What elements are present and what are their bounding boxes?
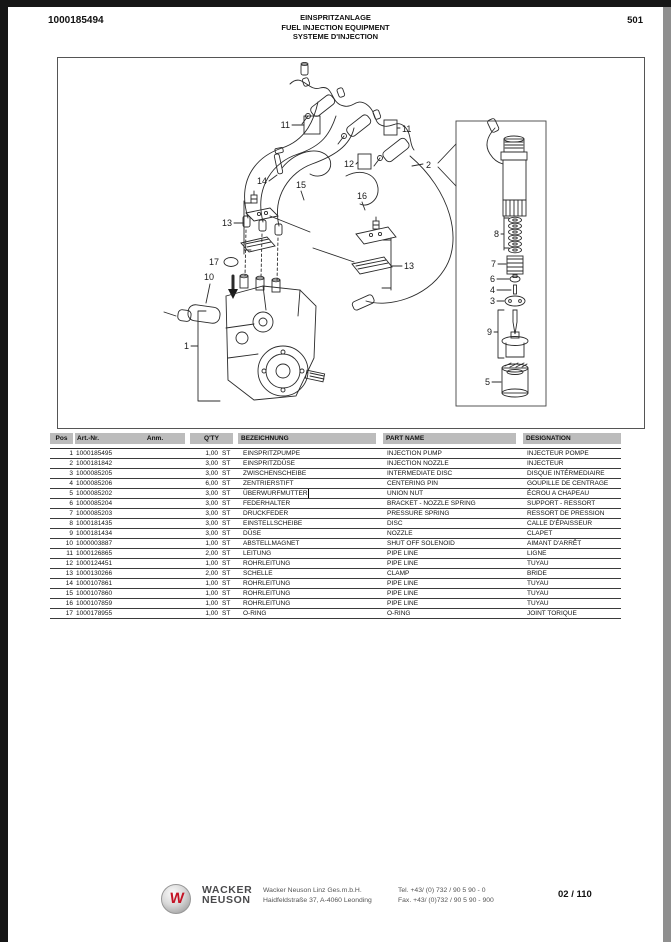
cell-art-nr: 1000126865	[76, 549, 128, 558]
cell-pos: 4	[50, 479, 73, 488]
cell-unit: ST	[218, 569, 240, 578]
cell-designation: JOINT TORIQUE	[524, 609, 621, 618]
cell-art-nr: 1000003887	[76, 539, 128, 548]
callout-3: 3	[490, 296, 495, 306]
viewer-right-gutter	[663, 0, 671, 942]
table-row: 4 1000085206 6,00 ST ZENTRIERSTIFT CENTE…	[50, 479, 621, 489]
cell-anm	[128, 509, 183, 518]
cell-bezeichnung: FEDERHALTER	[240, 499, 384, 508]
table-body: 1 1000185495 1,00 ST EINSPRITZPUMPE INJE…	[50, 448, 621, 619]
cell-bezeichnung: LEITUNG	[240, 549, 384, 558]
cell-anm	[128, 559, 183, 568]
cell-unit: ST	[218, 469, 240, 478]
callout-13-left: 13	[222, 218, 232, 228]
cell-anm	[128, 539, 183, 548]
cell-pos: 15	[50, 589, 73, 598]
cell-qty: 3,00	[183, 529, 218, 538]
cell-qty: 3,00	[183, 499, 218, 508]
callout-12: 12	[344, 159, 354, 169]
cell-designation: CALLE D'ÉPAISSEUR	[524, 519, 621, 528]
cell-art-nr: 1000085204	[76, 499, 128, 508]
cell-designation: GOUPILLE DE CENTRAGE	[524, 479, 621, 488]
brand-wordmark: WACKER NEUSON	[202, 885, 252, 905]
cell-unit: ST	[218, 559, 240, 568]
callout-6: 6	[490, 274, 495, 284]
cell-art-nr: 1000181434	[76, 529, 128, 538]
callout-16: 16	[357, 191, 367, 201]
cell-designation: TUYAU	[524, 559, 621, 568]
cell-art-nr: 1000085202	[76, 489, 128, 498]
cell-bezeichnung: EINSPRITZPUMPE	[240, 449, 384, 458]
table-row: 3 1000085205 3,00 ST ZWISCHENSCHEIBE INT…	[50, 469, 621, 479]
cell-pos: 11	[50, 549, 73, 558]
cell-part-name: PRESSURE SPRING	[384, 509, 524, 518]
cell-part-name: PIPE LINE	[384, 549, 524, 558]
table-header-row: Pos Art.-Nr. Anm. Q'TY BEZEICHNUNG PART …	[50, 433, 621, 444]
table-row: 2 1000181842 3,00 ST EINSPRITZDÜSE INJEC…	[50, 459, 621, 469]
cell-designation: CLAPET	[524, 529, 621, 538]
cell-art-nr: 1000178955	[76, 609, 128, 618]
cell-part-name: O-RING	[384, 609, 524, 618]
cell-pos: 5	[50, 489, 73, 498]
cell-qty: 3,00	[183, 489, 218, 498]
callout-11-left: 11	[281, 120, 290, 130]
wacker-neuson-logo: W	[161, 884, 191, 914]
cell-pos: 17	[50, 609, 73, 618]
cell-pos: 2	[50, 459, 73, 468]
cell-unit: ST	[218, 589, 240, 598]
cell-pos: 6	[50, 499, 73, 508]
cell-anm	[128, 459, 183, 468]
cell-designation: AIMANT D'ARRÊT	[524, 539, 621, 548]
parts-diagram: 11 11 12 2 14 15 16 13 13 17 10 1 8 7 6 …	[57, 57, 645, 429]
cell-bezeichnung: EINSPRITZDÜSE	[240, 459, 384, 468]
cell-anm	[128, 499, 183, 508]
table-row: 13 1000130266 2,00 ST SCHELLE CLAMP BRID…	[50, 569, 621, 579]
cell-unit: ST	[218, 599, 240, 608]
cell-part-name: PIPE LINE	[384, 559, 524, 568]
cell-art-nr: 1000130266	[76, 569, 128, 578]
fax-line: Fax. +43/ (0)732 / 90 5 90 - 900	[398, 896, 494, 906]
callout-15: 15	[296, 180, 306, 190]
cell-designation: ÉCROU A CHAPEAU	[524, 489, 621, 498]
logo-w-letter: W	[161, 890, 193, 907]
cell-anm	[128, 519, 183, 528]
table-row: 8 1000181435 3,00 ST EINSTELLSCHEIBE DIS…	[50, 519, 621, 529]
cell-anm	[128, 469, 183, 478]
cell-part-name: INJECTION NOZZLE	[384, 459, 524, 468]
company-name: Wacker Neuson Linz Ges.m.b.H.	[263, 886, 372, 896]
cell-art-nr: 1000107859	[76, 599, 128, 608]
cell-qty: 3,00	[183, 459, 218, 468]
cell-unit: ST	[218, 609, 240, 618]
callout-7: 7	[491, 259, 496, 269]
cell-art-nr: 1000107860	[76, 589, 128, 598]
parts-diagram-drawing: 11 11 12 2 14 15 16 13 13 17 10 1 8 7 6 …	[58, 58, 644, 428]
cell-part-name: BRACKET - NOZZLE SPRING	[384, 499, 524, 508]
cell-bezeichnung: ÜBERWURFMUTTER	[240, 489, 384, 498]
cell-part-name: NOZZLE	[384, 529, 524, 538]
callout-14: 14	[257, 176, 267, 186]
cell-part-name: PIPE LINE	[384, 599, 524, 608]
phone-line: Tel. +43/ (0) 732 / 90 5 90 - 0	[398, 886, 494, 896]
column-header-artnr: Art.-Nr.	[77, 433, 99, 444]
cell-anm	[128, 599, 183, 608]
title-french: SYSTEME D'INJECTION	[0, 32, 671, 42]
cell-unit: ST	[218, 549, 240, 558]
cell-anm	[128, 609, 183, 618]
table-row: 12 1000124451 1,00 ST ROHRLEITUNG PIPE L…	[50, 559, 621, 569]
cell-anm	[128, 479, 183, 488]
callout-2: 2	[426, 160, 431, 170]
cell-art-nr: 1000124451	[76, 559, 128, 568]
column-header-qty: Q'TY	[190, 433, 233, 444]
cell-bezeichnung: ROHRLEITUNG	[240, 579, 384, 588]
cell-qty: 1,00	[183, 559, 218, 568]
cell-part-name: INJECTION PUMP	[384, 449, 524, 458]
column-header-partname: PART NAME	[383, 433, 516, 444]
cell-art-nr: 1000181435	[76, 519, 128, 528]
title-english: FUEL INJECTION EQUIPMENT	[0, 23, 671, 33]
cell-art-nr: 1000085203	[76, 509, 128, 518]
table-row: 15 1000107860 1,00 ST ROHRLEITUNG PIPE L…	[50, 589, 621, 599]
text-cursor	[308, 489, 310, 498]
column-header-bezeichnung: BEZEICHNUNG	[238, 433, 376, 444]
sheet-indicator: 02 / 110	[558, 889, 592, 900]
column-header-artnr-anm: Art.-Nr. Anm.	[75, 433, 185, 444]
cell-bezeichnung: O-RING	[240, 609, 384, 618]
cell-unit: ST	[218, 579, 240, 588]
cell-qty: 1,00	[183, 579, 218, 588]
cell-unit: ST	[218, 489, 240, 498]
cell-unit: ST	[218, 449, 240, 458]
cell-qty: 3,00	[183, 509, 218, 518]
cell-designation: RESSORT DE PRESSION	[524, 509, 621, 518]
callout-5: 5	[485, 377, 490, 387]
cell-anm	[128, 549, 183, 558]
cell-anm	[128, 489, 183, 498]
cell-pos: 14	[50, 579, 73, 588]
page-number: 501	[627, 15, 643, 26]
cell-unit: ST	[218, 509, 240, 518]
table-row: 1 1000185495 1,00 ST EINSPRITZPUMPE INJE…	[50, 449, 621, 459]
column-header-designation: DESIGNATION	[523, 433, 621, 444]
cell-part-name: SHUT OFF SOLENOID	[384, 539, 524, 548]
brand-line-2: NEUSON	[202, 895, 252, 905]
cell-designation: BRIDE	[524, 569, 621, 578]
cell-qty: 1,00	[183, 449, 218, 458]
cell-anm	[128, 529, 183, 538]
cell-bezeichnung: DÜSE	[240, 529, 384, 538]
callout-17: 17	[209, 257, 219, 267]
cell-designation: TUYAU	[524, 579, 621, 588]
cell-qty: 2,00	[183, 549, 218, 558]
column-header-anm: Anm.	[130, 433, 180, 444]
cell-bezeichnung: ROHRLEITUNG	[240, 599, 384, 608]
cell-anm	[128, 579, 183, 588]
callout-4: 4	[490, 285, 495, 295]
cell-art-nr: 1000085205	[76, 469, 128, 478]
cell-qty: 3,00	[183, 519, 218, 528]
cell-designation: DISQUE INTÉRMEDIAIRE	[524, 469, 621, 478]
viewer-top-edge	[0, 0, 671, 7]
callout-8: 8	[494, 229, 499, 239]
cell-unit: ST	[218, 499, 240, 508]
cell-bezeichnung: ZENTRIERSTIFT	[240, 479, 384, 488]
cell-designation: SUPPORT - RESSORT	[524, 499, 621, 508]
cell-designation: TUYAU	[524, 599, 621, 608]
company-street: Haidfeldstraße 37, A-4060 Leonding	[263, 896, 372, 906]
table-row: 11 1000126865 2,00 ST LEITUNG PIPE LINE …	[50, 549, 621, 559]
callout-1: 1	[184, 341, 189, 351]
table-row: 9 1000181434 3,00 ST DÜSE NOZZLE CLAPET	[50, 529, 621, 539]
cell-pos: 7	[50, 509, 73, 518]
page-title: EINSPRITZANLAGE FUEL INJECTION EQUIPMENT…	[0, 13, 671, 42]
cell-qty: 2,00	[183, 569, 218, 578]
cell-qty: 6,00	[183, 479, 218, 488]
cell-designation: TUYAU	[524, 589, 621, 598]
cell-part-name: UNION NUT	[384, 489, 524, 498]
cell-qty: 1,00	[183, 599, 218, 608]
cell-unit: ST	[218, 539, 240, 548]
viewer-left-edge	[0, 0, 8, 942]
cell-bezeichnung: EINSTELLSCHEIBE	[240, 519, 384, 528]
table-row: 7 1000085203 3,00 ST DRUCKFEDER PRESSURE…	[50, 509, 621, 519]
cell-pos: 8	[50, 519, 73, 528]
cell-unit: ST	[218, 479, 240, 488]
cell-bezeichnung: ZWISCHENSCHEIBE	[240, 469, 384, 478]
cell-art-nr: 1000085206	[76, 479, 128, 488]
cell-part-name: CENTERING PIN	[384, 479, 524, 488]
cell-bezeichnung: ROHRLEITUNG	[240, 559, 384, 568]
callout-9: 9	[487, 327, 492, 337]
cell-unit: ST	[218, 529, 240, 538]
table-row: 14 1000107861 1,00 ST ROHRLEITUNG PIPE L…	[50, 579, 621, 589]
cell-part-name: INTERMEDIATE DISC	[384, 469, 524, 478]
cell-qty: 3,00	[183, 469, 218, 478]
cell-bezeichnung: ROHRLEITUNG	[240, 589, 384, 598]
cell-unit: ST	[218, 459, 240, 468]
callout-10: 10	[204, 272, 214, 282]
cell-designation: INJECTEUR	[524, 459, 621, 468]
cell-qty: 1,00	[183, 589, 218, 598]
cell-pos: 12	[50, 559, 73, 568]
cell-designation: INJECTEUR POMPE	[524, 449, 621, 458]
cell-pos: 16	[50, 599, 73, 608]
cell-qty: 1,00	[183, 539, 218, 548]
cell-pos: 10	[50, 539, 73, 548]
cell-qty: 1,00	[183, 609, 218, 618]
company-address: Wacker Neuson Linz Ges.m.b.H. Haidfeldst…	[263, 886, 372, 905]
parts-table: Pos Art.-Nr. Anm. Q'TY BEZEICHNUNG PART …	[50, 433, 621, 619]
cell-pos: 9	[50, 529, 73, 538]
table-row: 5 1000085202 3,00 ST ÜBERWURFMUTTER UNIO…	[50, 489, 621, 499]
cell-part-name: CLAMP	[384, 569, 524, 578]
cell-pos: 13	[50, 569, 73, 578]
table-row: 10 1000003887 1,00 ST ABSTELLMAGNET SHUT…	[50, 539, 621, 549]
cell-part-name: PIPE LINE	[384, 579, 524, 588]
table-row: 6 1000085204 3,00 ST FEDERHALTER BRACKET…	[50, 499, 621, 509]
cell-unit: ST	[218, 519, 240, 528]
table-row: 17 1000178955 1,00 ST O-RING O-RING JOIN…	[50, 609, 621, 619]
column-header-pos: Pos	[50, 433, 73, 444]
cell-bezeichnung: DRUCKFEDER	[240, 509, 384, 518]
cell-anm	[128, 569, 183, 578]
cell-art-nr: 1000185495	[76, 449, 128, 458]
cell-designation: LIGNE	[524, 549, 621, 558]
cell-anm	[128, 449, 183, 458]
title-german: EINSPRITZANLAGE	[0, 13, 671, 23]
cell-part-name: DISC	[384, 519, 524, 528]
callout-13-right: 13	[404, 261, 414, 271]
table-row: 16 1000107859 1,00 ST ROHRLEITUNG PIPE L…	[50, 599, 621, 609]
cell-bezeichnung: ABSTELLMAGNET	[240, 539, 384, 548]
cell-anm	[128, 589, 183, 598]
cell-pos: 1	[50, 449, 73, 458]
contact-info: Tel. +43/ (0) 732 / 90 5 90 - 0 Fax. +43…	[398, 886, 494, 905]
cell-art-nr: 1000181842	[76, 459, 128, 468]
cell-bezeichnung: SCHELLE	[240, 569, 384, 578]
callout-11-right: 11	[402, 124, 411, 134]
cell-part-name: PIPE LINE	[384, 589, 524, 598]
cell-pos: 3	[50, 469, 73, 478]
cell-art-nr: 1000107861	[76, 579, 128, 588]
